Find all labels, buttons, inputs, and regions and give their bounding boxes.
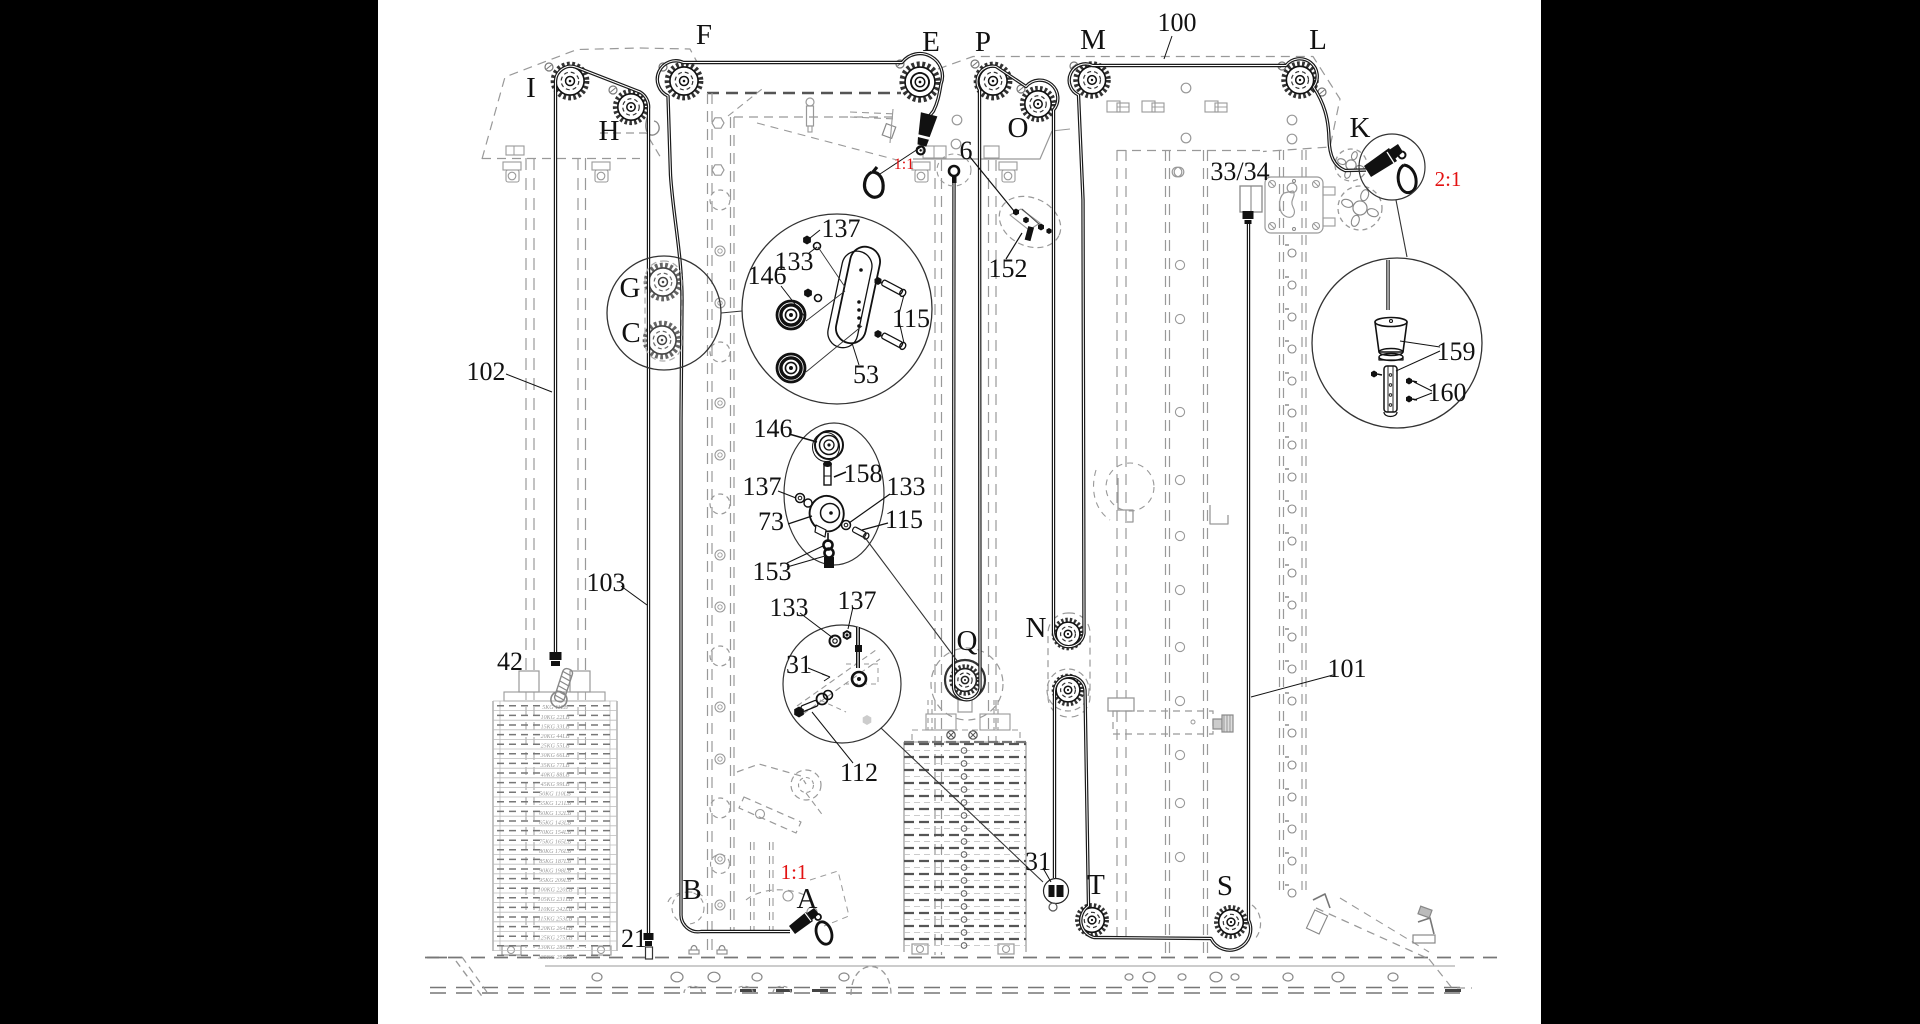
svg-text:1:1: 1:1 <box>894 156 914 173</box>
svg-text:6: 6 <box>960 136 973 165</box>
svg-text:133: 133 <box>770 593 809 622</box>
svg-text:F: F <box>696 19 712 51</box>
svg-text:135KG 297LB: 135KG 297LB <box>538 955 573 961</box>
svg-text:102: 102 <box>467 357 506 386</box>
svg-text:137: 137 <box>838 586 877 615</box>
svg-text:103: 103 <box>587 568 626 597</box>
svg-text:112: 112 <box>840 758 878 787</box>
svg-text:I: I <box>526 72 536 104</box>
svg-text:137: 137 <box>822 214 861 243</box>
svg-text:Q: Q <box>957 625 978 657</box>
svg-text:152: 152 <box>989 254 1028 283</box>
svg-text:O: O <box>1008 112 1029 144</box>
svg-text:115: 115 <box>892 304 930 333</box>
svg-text:159: 159 <box>1437 337 1476 366</box>
svg-text:31: 31 <box>786 650 812 679</box>
svg-text:B: B <box>682 874 701 906</box>
svg-text:G: G <box>620 272 641 304</box>
svg-text:146: 146 <box>748 261 787 290</box>
svg-text:2:1: 2:1 <box>1435 167 1462 191</box>
svg-text:100: 100 <box>1158 8 1197 37</box>
svg-text:65KG 143LB: 65KG 143LB <box>539 819 571 826</box>
svg-text:C: C <box>621 317 640 349</box>
svg-text:45KG 99LB: 45KG 99LB <box>541 781 570 788</box>
svg-text:33/34: 33/34 <box>1210 157 1269 186</box>
svg-text:S: S <box>1217 870 1233 902</box>
svg-text:31: 31 <box>1025 847 1051 876</box>
svg-text:137: 137 <box>743 472 782 501</box>
svg-text:120KG 264LB: 120KG 264LB <box>538 925 573 932</box>
svg-text:K: K <box>1350 112 1371 144</box>
svg-text:E: E <box>922 26 940 58</box>
svg-text:133: 133 <box>887 472 926 501</box>
svg-text:70KG 154LB: 70KG 154LB <box>539 829 571 836</box>
svg-text:1:1: 1:1 <box>781 860 808 884</box>
svg-text:146: 146 <box>754 414 793 443</box>
svg-text:L: L <box>1309 24 1327 56</box>
svg-text:115: 115 <box>885 505 923 534</box>
svg-text:40KG 88LB: 40KG 88LB <box>541 771 570 778</box>
svg-text:73: 73 <box>758 507 784 536</box>
svg-text:101: 101 <box>1328 654 1367 683</box>
svg-text:158: 158 <box>844 459 883 488</box>
svg-text:160: 160 <box>1428 378 1467 407</box>
svg-text:P: P <box>975 26 991 58</box>
svg-text:42: 42 <box>497 647 523 676</box>
svg-text:21: 21 <box>621 924 647 953</box>
svg-text:A: A <box>797 883 818 915</box>
svg-text:153: 153 <box>753 557 792 586</box>
svg-text:53: 53 <box>853 360 879 389</box>
svg-text:M: M <box>1080 24 1106 56</box>
svg-text:T: T <box>1087 869 1105 901</box>
svg-text:110KG 242LB: 110KG 242LB <box>538 906 573 913</box>
svg-text:H: H <box>599 115 620 147</box>
svg-text:20KG 44LB: 20KG 44LB <box>541 733 570 740</box>
svg-text:N: N <box>1026 612 1047 644</box>
